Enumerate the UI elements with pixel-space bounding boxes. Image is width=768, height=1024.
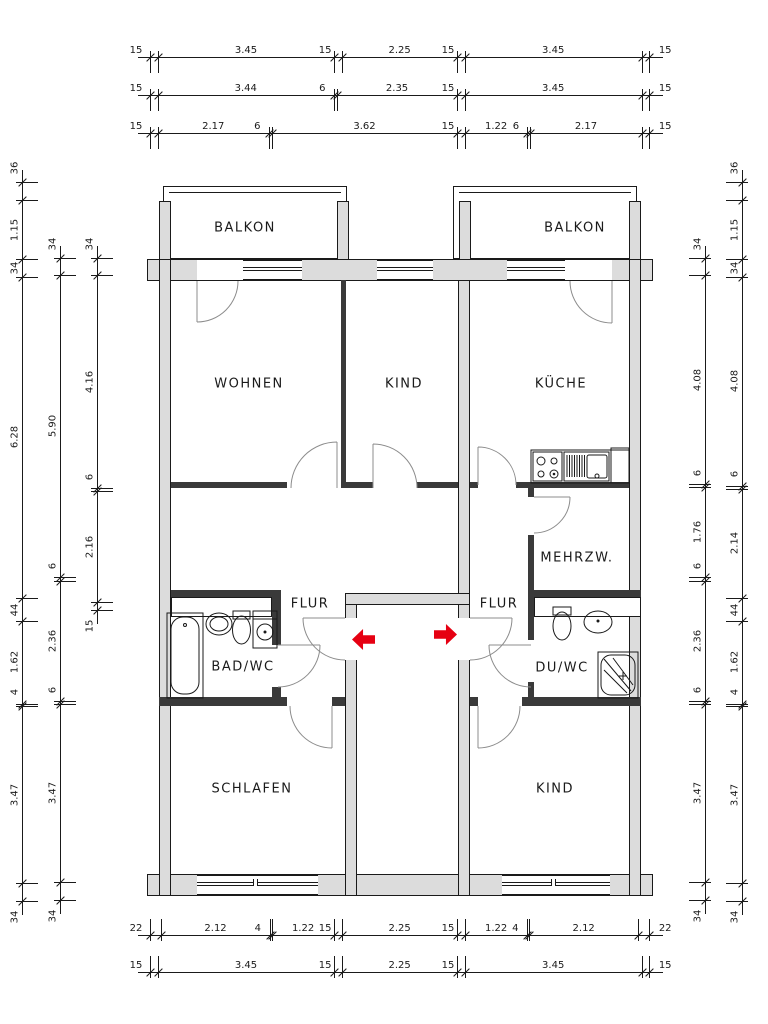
window-wohnen [243, 260, 302, 280]
wall-kind-bottom-top-a [470, 697, 478, 706]
wall-left-exterior [159, 259, 171, 896]
dim-mark [334, 89, 335, 111]
dim-label: 15 [659, 83, 672, 94]
dim-label: 34 [730, 262, 741, 275]
dim-label: 3.44 [235, 83, 257, 94]
dim-label: 6 [48, 687, 59, 693]
dim-mark [689, 882, 711, 883]
dim-label: 4.08 [730, 370, 741, 392]
dim-mark [342, 919, 343, 941]
dim-mark [649, 919, 650, 941]
dim-mark [22, 170, 23, 915]
dim-label: 15 [442, 960, 455, 971]
dim-mark [726, 277, 748, 278]
balcony-pillar-2 [337, 201, 349, 260]
dim-mark [272, 127, 273, 149]
dim-mark [726, 706, 748, 707]
dim-mark [161, 919, 162, 941]
dim-label: 15 [659, 45, 672, 56]
dim-mark [158, 51, 159, 73]
dim-label: 36 [730, 162, 741, 175]
dim-label: 2.25 [388, 923, 410, 934]
dim-label: 2.14 [730, 532, 741, 554]
dim-label: 6.28 [10, 426, 21, 448]
dim-label: 6 [254, 121, 260, 132]
fixtures-and-doors-layer [0, 0, 768, 1024]
dim-mark [529, 919, 530, 941]
dim-mark [465, 919, 466, 941]
closet-left [171, 597, 272, 617]
dim-label: 6 [319, 83, 325, 94]
balcony-door-opening-right [565, 260, 612, 280]
wall-closet-left-top [171, 590, 281, 597]
dim-label: 3.45 [542, 960, 564, 971]
balcony-pillar-1 [159, 201, 171, 260]
dim-mark [97, 246, 98, 624]
dim-label: 2.36 [48, 630, 59, 652]
dim-label: 6 [693, 563, 704, 569]
dim-mark [150, 51, 151, 73]
dim-label: 2.17 [575, 121, 597, 132]
wall-mehrzw-left-b [528, 535, 534, 593]
dim-label: 2.36 [693, 630, 704, 652]
dim-label: 15 [130, 45, 143, 56]
stove-icon [533, 452, 562, 481]
dim-label: 15 [659, 960, 672, 971]
window-kind-top [377, 260, 433, 280]
dim-label: 44 [10, 603, 21, 616]
dim-label: 3.45 [235, 45, 257, 56]
dim-label: 6 [693, 470, 704, 476]
dim-mark [465, 956, 466, 978]
dim-mark [16, 182, 38, 183]
dim-mark [150, 127, 151, 149]
dim-mark [334, 919, 335, 941]
dim-mark [138, 133, 663, 134]
bathtub-icon [167, 613, 203, 698]
dim-label: 1.22 [485, 923, 507, 934]
dim-label: 15 [130, 960, 143, 971]
dim-label: 34 [48, 909, 59, 922]
floorplan-canvas: BALKONBALKONWOHNENKINDKÜCHEMEHRZW.FLURFL… [0, 0, 768, 1024]
wall-kind-top-bottom-b [417, 482, 458, 488]
dim-mark [649, 956, 650, 978]
wall-mehrzw-left-a [528, 488, 534, 497]
dim-label: 2.25 [388, 960, 410, 971]
dim-mark [689, 581, 711, 582]
dim-label: 2.12 [573, 923, 595, 934]
dim-mark [158, 127, 159, 149]
dim-label: 34 [730, 910, 741, 923]
dim-mark [342, 956, 343, 978]
dim-label: 15 [442, 45, 455, 56]
dim-label: 1.22 [485, 121, 507, 132]
room-label-wohnen: WOHNEN [214, 377, 284, 392]
dim-mark [689, 487, 711, 488]
dim-mark [269, 127, 270, 149]
dim-mark [465, 127, 466, 149]
dim-label: 5.90 [48, 415, 59, 437]
dim-mark [726, 883, 748, 884]
dim-label: 4 [10, 689, 21, 695]
dim-label: 4 [255, 923, 261, 934]
room-label-flur-left: FLUR [291, 597, 330, 612]
dim-label: 6 [693, 687, 704, 693]
wall-wohnen-bottom [171, 482, 287, 488]
dim-mark [16, 901, 38, 902]
dim-mark [726, 182, 748, 183]
dim-mark [726, 259, 748, 260]
dim-label: 3.47 [730, 783, 741, 805]
dim-mark [689, 258, 711, 259]
dim-mark [54, 258, 76, 259]
dim-mark [337, 89, 338, 111]
dim-mark [91, 602, 113, 603]
window-mullion-schlafen [253, 879, 258, 886]
dim-label: 1.22 [292, 923, 314, 934]
dim-label: 22 [659, 923, 672, 934]
dim-mark [726, 489, 748, 490]
dim-label: 4.08 [693, 369, 704, 391]
dim-mark [138, 57, 663, 58]
dim-label: 3.45 [542, 83, 564, 94]
wall-stairwell-right [458, 280, 470, 896]
dim-mark [642, 89, 643, 111]
dim-label: 15 [442, 923, 455, 934]
dim-mark [689, 275, 711, 276]
dim-label: 1.15 [10, 219, 21, 241]
dim-label: 15 [85, 619, 96, 632]
dim-label: 34 [48, 238, 59, 251]
dim-label: 6 [513, 121, 519, 132]
dim-mark [16, 704, 38, 705]
dim-label: 15 [319, 45, 332, 56]
dim-label: 34 [10, 910, 21, 923]
dim-label: 15 [130, 83, 143, 94]
dim-mark [689, 704, 711, 705]
dim-mark [642, 127, 643, 149]
dim-mark [457, 956, 458, 978]
dim-mark [54, 581, 76, 582]
dim-mark [91, 610, 113, 611]
dim-mark [150, 956, 151, 978]
dim-mark [465, 89, 466, 111]
dim-mark [334, 956, 335, 978]
dim-label: 1.76 [693, 521, 704, 543]
kitchen-counter [531, 448, 629, 483]
dim-label: 1.62 [10, 651, 21, 673]
dim-mark [54, 882, 76, 883]
dim-mark [16, 706, 38, 707]
balcony-door-opening-left [197, 260, 243, 280]
dim-label: 1.62 [730, 651, 741, 673]
dim-label: 2.12 [204, 923, 226, 934]
dim-label: 6 [48, 563, 59, 569]
balcony-left-inner-line [169, 192, 341, 193]
room-label-kind-top: KIND [385, 377, 423, 392]
window-mullion-kind [551, 879, 556, 886]
dim-mark [465, 51, 466, 73]
wall-closet-right-top [528, 590, 641, 597]
dim-mark [726, 200, 748, 201]
dim-mark [642, 956, 643, 978]
dim-label: 6 [730, 471, 741, 477]
room-label-du-wc: DU/WC [535, 661, 588, 676]
room-label-schlafen: SCHLAFEN [212, 782, 293, 797]
dim-label: 36 [10, 162, 21, 175]
room-label-mehrzweck: MEHRZW. [540, 551, 613, 566]
dim-label: 6 [85, 474, 96, 480]
dim-label: 2.17 [202, 121, 224, 132]
dim-label: 1.15 [730, 219, 741, 241]
dim-mark [742, 170, 743, 915]
wall-right-exterior [629, 259, 641, 896]
dim-mark [642, 51, 643, 73]
wall-kind-top-bottom-a [346, 482, 373, 488]
room-label-bad-wc: BAD/WC [211, 660, 274, 675]
dim-mark [138, 972, 663, 973]
dim-mark [138, 95, 663, 96]
dim-label: 2.16 [85, 536, 96, 558]
balcony-pillar-4 [629, 201, 641, 260]
fridge-icon [611, 448, 629, 483]
dim-label: 2.25 [388, 45, 410, 56]
dim-mark [54, 900, 76, 901]
sink-unit-icon [564, 452, 609, 481]
wall-schlafen-top-b [332, 697, 345, 706]
door-swings [197, 281, 612, 748]
wall-kind-bottom-top-b [522, 697, 641, 706]
dim-mark [272, 919, 273, 941]
dim-mark [726, 901, 748, 902]
closet-right [534, 597, 641, 617]
dim-mark [150, 89, 151, 111]
dim-label: 4 [730, 689, 741, 695]
room-label-balkon-left: BALKON [214, 221, 276, 236]
dim-label: 4.16 [85, 371, 96, 393]
dim-mark [138, 935, 663, 936]
wall-kueche-bottom-a [470, 482, 478, 488]
wall-schlafen-top-a [159, 697, 287, 706]
dim-mark [726, 621, 748, 622]
dim-label: 34 [10, 262, 21, 275]
room-label-kueche: KÜCHE [535, 377, 587, 392]
dim-mark [91, 258, 113, 259]
room-label-kind-bottom: KIND [536, 782, 574, 797]
dim-label: 2.35 [386, 83, 408, 94]
dim-label: 4 [512, 923, 518, 934]
dim-label: 15 [319, 960, 332, 971]
window-kueche [507, 260, 565, 280]
dim-label: 3.47 [693, 782, 704, 804]
dim-label: 3.45 [235, 960, 257, 971]
entrance-arrow-right [434, 624, 457, 645]
balcony-right-inner-line [459, 192, 631, 193]
dim-mark [457, 919, 458, 941]
dim-mark [689, 900, 711, 901]
dim-label: 3.62 [353, 121, 375, 132]
wall-bad-right-a [272, 597, 281, 645]
dim-mark [16, 277, 38, 278]
dim-mark [158, 89, 159, 111]
dim-label: 3.47 [10, 783, 21, 805]
dim-mark [158, 956, 159, 978]
dim-label: 22 [130, 923, 143, 934]
dim-label: 34 [85, 238, 96, 251]
window-kind-bottom [502, 875, 610, 895]
dim-mark [342, 51, 343, 73]
dim-mark [150, 919, 151, 941]
dim-label: 34 [693, 909, 704, 922]
dim-label: 15 [659, 121, 672, 132]
dim-label: 3.47 [48, 782, 59, 804]
entry-door-opening-right [458, 618, 470, 660]
room-label-balkon-right: BALKON [544, 221, 606, 236]
dim-label: 15 [442, 83, 455, 94]
dim-label: 15 [130, 121, 143, 132]
dim-label: 15 [442, 121, 455, 132]
dim-label: 15 [319, 923, 332, 934]
partition-wohnen-kind [341, 280, 346, 488]
wall-stairwell-top [345, 593, 470, 605]
dim-mark [726, 598, 748, 599]
dim-mark [638, 919, 639, 941]
balcony-pillar-3 [459, 201, 471, 260]
dim-mark [16, 621, 38, 622]
dim-label: 34 [693, 238, 704, 251]
dim-label: 44 [730, 603, 741, 616]
dim-label: 3.45 [542, 45, 564, 56]
room-label-flur-right: FLUR [480, 597, 519, 612]
